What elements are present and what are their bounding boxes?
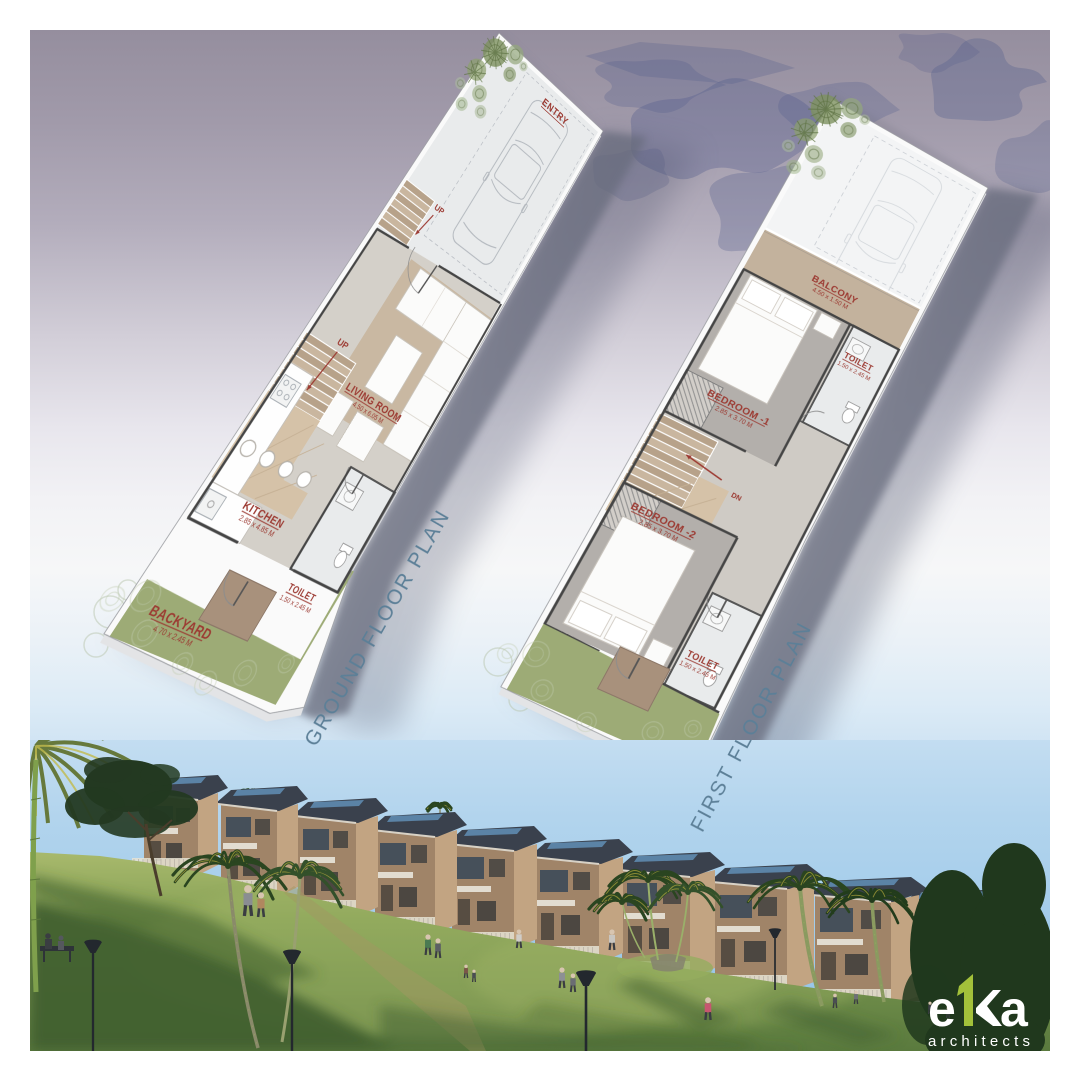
svg-text:architects: architects [928,1033,1034,1050]
svg-text:e: e [928,981,956,1037]
svg-text:a: a [1000,981,1029,1037]
